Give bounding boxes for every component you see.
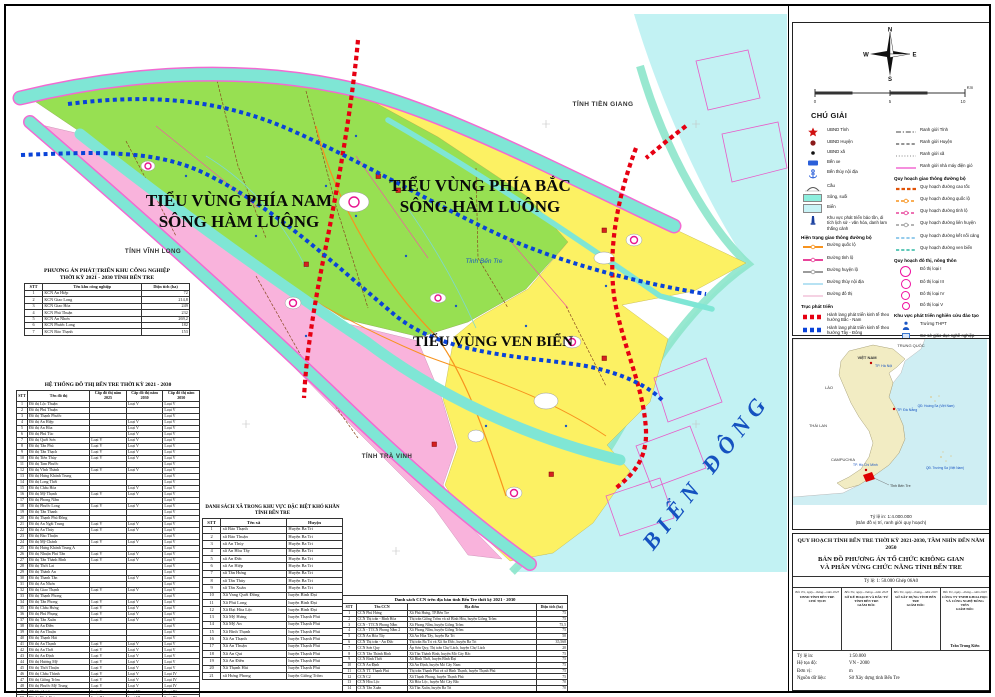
legend-item: Ranh giới Huyện [894,139,983,149]
plan-title: QUY HOẠCH TỈNH BẾN TRE THỜI KỲ 2021-2030… [793,534,989,555]
svg-text:Km: Km [967,85,974,90]
legend-item: UBND Huyện [801,139,890,147]
table-cell: Xã An Thuận [221,643,287,650]
table-cell: Huyện Ba Tri [286,585,342,592]
urban-table-title: HỆ THỐNG ĐÔ THỊ BẾN TRE THỜI KỲ 2021 - 2… [16,382,200,389]
ccn-table-block: Danh sách CCN trên địa bàn tỉnh Bến Tre … [342,595,568,692]
svg-text:Tỉnh Bến Tre: Tỉnh Bến Tre [890,484,911,488]
legend-swatch-icon [894,266,917,277]
legend-swatch-icon [801,127,824,137]
legend-swatch-icon [894,151,917,161]
legend-section-header: Khu vực phát triển nghiên cứu đào tạo [894,313,983,319]
signature-columns: Bến Tre, ngày....tháng....năm 2023UBND T… [793,588,989,651]
table-cell: 17 [203,643,221,650]
legend-swatch-icon [894,291,917,300]
table-row: 19Xã An Điềnhuyện Thạnh Phú [203,658,343,665]
legend-item: Đô thị loại IV [894,291,983,300]
table-row: 3xã An ThủyHuyện Ba Tri [203,541,343,548]
svg-text:10: 10 [961,99,966,104]
signature-column: Bến Tre, ngày....tháng....năm 2023SỞ XÂY… [892,588,941,650]
label-region-north: TIỂU VÙNG PHÍA BẮC [389,176,571,195]
legend-swatch-icon [801,267,824,277]
table-row: 5xã An ĐứcHuyện Ba Tri [203,555,343,562]
legend-item: Sông, suối [801,194,890,203]
legend-item-label: Cầu [827,183,835,189]
table-cell: 5 [203,555,221,562]
svg-text:TP. Hồ Chí Minh: TP. Hồ Chí Minh [853,463,878,467]
legend-item: Trường THPT [894,321,983,331]
table-cell: huyện Thạnh Phú [286,658,342,665]
table-cell: huyện Thạnh Phú [286,636,342,643]
legend-swatch-icon [801,279,824,289]
table-cell: Huyện Ba Tri [286,577,342,584]
table-cell: huyện Bình Đại [286,607,342,614]
signature-column: Bến Tre, ngày....tháng....năm 2023SỞ KẾ … [842,588,891,650]
column-header: STT [17,390,28,401]
table-cell: Huyện Ba Tri [286,555,342,562]
column-header: Tên xã [221,519,287,526]
table-cell: xã Tân Thủy [221,577,287,584]
label-region-coast: TIỂU VÙNG VEN BIỂN [413,332,573,350]
legend-item-label: Ranh giới Huyện [920,139,952,145]
legend-item: Bến thủy nội địa [801,169,890,180]
legend-swatch-icon [894,127,917,137]
table-cell: 10 [203,592,221,599]
table-cell: 3 [203,541,221,548]
legend-item-label: Đường đô thị [827,291,852,297]
table-cell: huyện Thạnh Phú [286,651,342,658]
legend-item-label: Quy hoạch đường tỉnh lộ [920,208,968,214]
table-cell: 15 [203,629,221,636]
ccn-table: STTTên CCNĐịa điểmDiện tích (ha)1CCN Phú… [342,603,568,691]
legend-swatch-icon [801,242,824,252]
legend-swatch-icon [894,184,917,194]
legend-item: Quy hoạch đường tỉnh lộ [894,208,983,218]
table-cell: Huyện Ba Tri [286,526,342,533]
table-cell: xã An Thủy [221,541,287,548]
table-cell: Xã An Điền [221,658,287,665]
svg-text:QĐ. Hoàng Sa (Việt Nam): QĐ. Hoàng Sa (Việt Nam) [918,404,955,408]
legend-item-label: Quy hoạch đường cao tốc [920,184,970,190]
svg-text:W: W [863,53,869,59]
column-header: Cấp đô thị năm 2050 [163,390,200,401]
label-region-south: TIỂU VÙNG PHÍA NAM [146,191,332,210]
table-cell: huyện Thạnh Phú [286,614,342,621]
legend-item-label: Quy hoạch đường quốc lộ [920,196,970,202]
table-row: 12Xã Đại Hòa Lộchuyện Bình Đại [203,607,343,614]
column-header: Tên đô thị [27,390,89,401]
legend-item-label: Đô thị loại IV [920,291,944,297]
legend-swatch-icon [894,321,917,331]
legend-item: Hành lang phát triển kinh tế theo hướng … [801,325,890,336]
table-cell: KCN Bảo Thạnh [43,329,142,335]
svg-text:THÁI LAN: THÁI LAN [809,423,827,428]
svg-text:TP. Đà Nẵng: TP. Đà Nẵng [897,407,917,412]
legend-item-label: Đường tỉnh lộ [827,255,853,261]
map-area: TIỂU VÙNG PHÍA NAM SÔNG HÀM LUÔNG TIỂU V… [6,6,789,691]
legend-item-label: UBND Tỉnh [827,127,849,133]
table-row: 13Xã Mỹ Hưnghuyện Thạnh Phú [203,614,343,621]
titleblock-scale: Tỷ lệ: 1: 50.000 Ghép 06A0 [793,576,989,588]
table-cell: 16 [203,636,221,643]
table-cell: Huyện Ba Tri [286,570,342,577]
legend-item: Ranh giới Tỉnh [894,127,983,137]
ccn-table-title: Danh sách CCN trên địa bàn tỉnh Bến Tre … [342,595,568,603]
table-cell: Huyện Ba Tri [286,534,342,541]
table-row: 14CCN Tân XuânXã Tân Xuân, huyện Ba Tri7… [343,685,568,691]
legend-item: Quy hoạch đường kết nối cảng [894,233,983,243]
legend-section-header: Hiện trạng giao thông đường bộ [801,235,890,241]
compass-rose: N S W E [863,27,917,81]
table-cell: huyện Bình Đại [286,592,342,599]
table-cell: 18 [203,651,221,658]
legend-item-label: Bến thủy nội địa [827,169,858,175]
table-cell: xã Bảo Thuận [221,534,287,541]
table-cell: 7 [203,570,221,577]
legend-item: UBND Tỉnh [801,127,890,137]
table-cell: 11 [203,599,221,606]
table-cell: Xã Mỹ An [221,621,287,628]
legend-item: Đô thị loại III [894,279,983,289]
legend-item-label: Đường quốc lộ [827,242,856,248]
table-cell: CCN - TTCN Phong Nẫm 2 [356,628,408,634]
table-cell: Xã Bình Thạnh [221,629,287,636]
legend-swatch-icon [894,208,917,218]
table-cell: 19 [203,658,221,665]
legend-swatch-icon [801,183,824,192]
signature-column: Bến Tre, ngày....tháng....năm 2023UBND T… [793,588,842,650]
legend-swatch-icon [801,215,824,225]
legend-item-label: Biển [827,204,836,210]
table-row: 9xã Tân XuânHuyện Ba Tri [203,585,343,592]
svg-text:0: 0 [814,99,817,104]
legend-item: Đường quốc lộ [801,242,890,252]
column-header: Tên khu công nghiệp [43,283,142,290]
legend-item-label: UBND Huyện [827,139,853,145]
legend-swatch-icon [801,169,824,180]
map-title: BẢN ĐỒ PHƯƠNG ÁN TỔ CHỨC KHÔNG GIAN VÀ P… [793,555,989,577]
legend-item-label: Khu vực phát triển bảo tồn, di tích lịch… [827,215,890,232]
label-ben-tre: Tỉnh Bến Tre [465,257,502,265]
planning-map-page: TIỂU VÙNG PHÍA NAM SÔNG HÀM LUÔNG TIỂU V… [0,0,995,697]
table-cell: 12 [203,607,221,614]
column-header: Cấp đô thị năm 2030 [126,390,163,401]
legend-swatch-icon [801,291,824,301]
legend-swatch-icon [894,302,917,310]
svg-text:N: N [888,28,892,34]
table-cell: xã Bảo Thạnh [221,526,287,533]
legend-swatch-icon [801,194,824,203]
table-row: 20Xã Thạnh Hảihuyện Thạnh Phú [203,665,343,672]
legend-panel: N S W E 0 5 10 Km CHÚ GIẢI UBND TỉnhUBND… [792,22,990,336]
legend-item-label: Hành lang phát triển kinh tế theo hướng … [827,312,890,323]
legend-item-label: Đường thủy nội địa [827,279,864,285]
communes-table-block: DANH SÁCH XÃ TRONG KHU VỰC ĐẶC BIỆT KHÓ … [202,505,343,680]
legend-item: Đường thủy nội địa [801,279,890,289]
legend-swatch-icon [894,139,917,149]
table-row: 16Xã An Thạnhhuyện Thạnh Phú [203,636,343,643]
legend-swatch-icon [801,325,824,335]
vietnam-inset-map: TRUNG QUỐC VIỆT NAM LÀO THÁI LAN CAMPUCH… [793,339,987,505]
legend-item: Đô thị loại V [894,302,983,310]
svg-text:CAMPUCHIA: CAMPUCHIA [831,457,855,462]
table-cell: Xã Thạnh Hải [221,665,287,672]
label-tien-giang: TỈNH TIỀN GIANG [573,98,634,108]
svg-text:TRUNG QUỐC: TRUNG QUỐC [897,343,924,348]
legend-item: UBND xã [801,149,890,157]
table-cell: Xã Mỹ Hưng [221,614,287,621]
legend-item-label: Quy hoạch đường ven biển [920,245,972,251]
table-row: 4xã An Hòa TâyHuyện Ba Tri [203,548,343,555]
legend-swatch-icon [894,163,917,173]
legend-item: Đường đô thị [801,291,890,301]
label-tra-vinh: TỈNH TRÀ VINH [362,453,413,460]
table-cell: 9 [203,585,221,592]
svg-text:SÔNG HÀM LUÔNG: SÔNG HÀM LUÔNG [159,212,320,231]
table-cell: Xã An Qui [221,651,287,658]
legend-section-header: Trục phát triển [801,304,890,310]
table-cell: Huyện Ba Tri [286,563,342,570]
legend-item-label: Đô thị loại III [920,279,944,285]
urban-system-table-block: HỆ THỐNG ĐÔ THỊ BẾN TRE THỜI KỲ 2021 - 2… [16,382,200,697]
urban-system-table: STTTên đô thịCấp đô thị năm 2025Cấp đô t… [16,390,200,697]
legend-item: Bến xe [801,159,890,167]
legend-swatch-icon [801,255,824,265]
table-row: 1xã Bảo ThạnhHuyện Ba Tri [203,526,343,533]
table-cell: Xã Đại Hòa Lộc [221,607,287,614]
legend-item-label: Đô thị loại I [920,266,942,272]
scale-bar: 0 5 10 Km [805,81,977,105]
table-cell: 1 [203,526,221,533]
legend-swatch-icon [801,149,824,157]
legend-swatch-icon [801,159,824,167]
legend-item-label: Trường THPT [920,321,947,327]
table-cell: xã Hưng Phong [221,672,287,679]
table-cell: Xã Vang Quới Đông [221,592,287,599]
legend-item-label: Sông, suối [827,194,847,200]
table-cell: 7 [25,329,43,335]
legend-item-label: Đô thị loại V [920,302,943,308]
svg-text:TP. Hà Nội: TP. Hà Nội [875,364,892,368]
legend-item: Cầu [801,183,890,192]
table-row: 8xã Tân ThủyHuyện Ba Tri [203,577,343,584]
table-cell: 6 [203,563,221,570]
table-row: 7KCN Bảo Thạnh153 [25,329,190,335]
legend-item: Hành lang phát triển kinh tế theo hướng … [801,312,890,323]
table-cell: huyện Thạnh Phú [286,643,342,650]
legend-item: Khu vực phát triển bảo tồn, di tích lịch… [801,215,890,232]
legend-swatch-icon [801,139,824,147]
legend-item: Quy hoạch đường liên huyện [894,220,983,230]
table-row: 18Xã An Quihuyện Thạnh Phú [203,651,343,658]
legend-title: CHÚ GIẢI [811,111,847,120]
table-cell: 21 [203,672,221,679]
legend-item: Đô thị loại I [894,266,983,277]
legend-swatch-icon [894,196,917,206]
metadata-row: Hệ tọa độ:VN - 2000 [797,660,985,667]
label-vinh-long: TỈNH VĨNH LONG [125,248,181,255]
legend-item-label: Hành lang phát triển kinh tế theo hướng … [827,325,890,336]
table-cell: huyện Giồng Trôm [286,672,342,679]
table-row: 15Xã Bình Thạnhhuyện Thạnh Phú [203,629,343,636]
table-cell: Xã An Thạnh [221,636,287,643]
legend-item: Đường tỉnh lộ [801,255,890,265]
table-cell: Huyện Ba Tri [286,548,342,555]
legend-swatch-icon [894,279,917,289]
svg-text:SÔNG HÀM LUÔNG: SÔNG HÀM LUÔNG [400,197,561,216]
legend-item-label: Đường huyện lộ [827,267,858,273]
table-cell: Xã Tân Xuân, huyện Ba Tri [408,685,536,691]
metadata-row: Đơn vị:m [797,668,985,675]
table-cell: 13 [203,614,221,621]
inset-caption-note: (Bản đồ vị trí, ranh giới quy hoạch) [793,520,989,526]
industrial-zones-table: STTTên khu công nghiệpDiện tích (ha)1KCN… [24,283,190,336]
table-row: 2xã Bảo ThuậnHuyện Ba Tri [203,534,343,541]
table-cell: xã An Hiệp [221,563,287,570]
legend-swatch-icon [801,204,824,213]
table-cell: Huyện Ba Tri [286,541,342,548]
svg-text:E: E [912,53,916,59]
table-cell: Xã Phú Long [221,599,287,606]
metadata-row: Tỷ lệ in:1:50.000 [797,653,985,660]
table-row: 11Xã Phú Longhuyện Bình Đại [203,599,343,606]
table-cell: CCN Tân Xuân [356,685,408,691]
legend-item-label: Ranh giới Tỉnh [920,127,948,133]
legend-item-label: Ranh giới nhà máy điện gió [920,163,973,169]
svg-text:QĐ. Trường Sa (Việt Nam): QĐ. Trường Sa (Việt Nam) [926,466,964,470]
table-cell: huyện Bình Đại [286,599,342,606]
legend-item-label: Quy hoạch đường liên huyện [920,220,976,226]
location-inset-panel: TRUNG QUỐC VIỆT NAM LÀO THÁI LAN CAMPUCH… [792,338,990,530]
legend-item: Đường huyện lộ [801,267,890,277]
column-header: STT [25,283,43,290]
legend-item-label: Bến xe [827,159,840,165]
map-metadata: Tỷ lệ in:1:50.000Hệ tọa độ:VN - 2000Đơn … [793,651,989,685]
legend-swatch-icon [894,233,917,243]
title-block: QUY HOẠCH TỈNH BẾN TRE THỜI KỲ 2021-2030… [792,533,990,691]
metadata-row: Nguồn dữ liệu:Sở Xây dựng tỉnh Bến Tre [797,675,985,682]
legend-item: Ranh giới nhà máy điện gió [894,163,983,173]
table-cell: xã An Hòa Tây [221,548,287,555]
table-row: 6xã An HiệpHuyện Ba Tri [203,563,343,570]
column-header: Diện tích (ha) [142,283,190,290]
signature-column: Bến Tre, ngày....tháng....năm 2023CÔNG T… [941,588,989,650]
table-cell: xã An Đức [221,555,287,562]
table-cell: 14 [343,685,357,691]
table-cell: huyện Thạnh Phú [286,629,342,636]
legend-item-label: UBND xã [827,149,845,155]
column-header: Huyện [286,519,342,526]
legend-item: Quy hoạch đường quốc lộ [894,196,983,206]
table-row: 10Xã Vang Quới Đônghuyện Bình Đại [203,592,343,599]
table-cell: huyện Thạnh Phú [286,621,342,628]
table-cell: huyện Thạnh Phú [286,665,342,672]
legend-section-header: Quy hoạch đô thị, nông thôn [894,258,983,264]
industrial-table-title: PHƯƠNG ÁN PHÁT TRIỂN KHU CÔNG NGHIỆP [24,268,190,275]
legend-swatch-icon [801,312,824,322]
table-cell: 4 [203,548,221,555]
table-cell: 2 [203,534,221,541]
table-cell: xã Tân Hưng [221,570,287,577]
table-cell: 153 [142,329,190,335]
table-cell: xã Tân Xuân [221,585,287,592]
column-header: STT [203,519,221,526]
legend-item: Biển [801,204,890,213]
table-row: 21xã Hưng Phonghuyện Giồng Trôm [203,672,343,679]
table-cell: 20 [203,665,221,672]
legend-item-label: Quy hoạch đường kết nối cảng [920,233,979,239]
table-row: 17Xã An Thuậnhuyện Thạnh Phú [203,643,343,650]
legend-item: Ranh giới xã [894,151,983,161]
table-cell: 70 [536,685,568,691]
svg-text:LÀO: LÀO [825,385,833,390]
legend-item: Quy hoạch đường ven biển [894,245,983,255]
communes-table: STTTên xãHuyện1xã Bảo ThạnhHuyện Ba Tri2… [202,518,343,680]
table-row: 14Xã Mỹ Anhuyện Thạnh Phú [203,621,343,628]
legend-item-label: Ranh giới xã [920,151,944,157]
industrial-zones-table-block: PHƯƠNG ÁN PHÁT TRIỂN KHU CÔNG NGHIỆP THỜ… [24,268,190,336]
column-header: Cấp đô thị năm 2025 [90,390,127,401]
svg-text:VIỆT NAM: VIỆT NAM [857,355,877,360]
table-row: 7xã Tân HưngHuyện Ba Tri [203,570,343,577]
legend-section-header: Quy hoạch giao thông đường bộ [894,176,983,182]
legend-swatch-icon [894,220,917,230]
legend-swatch-icon [894,245,917,255]
table-cell: 14 [203,621,221,628]
svg-text:5: 5 [889,99,892,104]
table-cell: 8 [203,577,221,584]
legend-item: Quy hoạch đường cao tốc [894,184,983,194]
